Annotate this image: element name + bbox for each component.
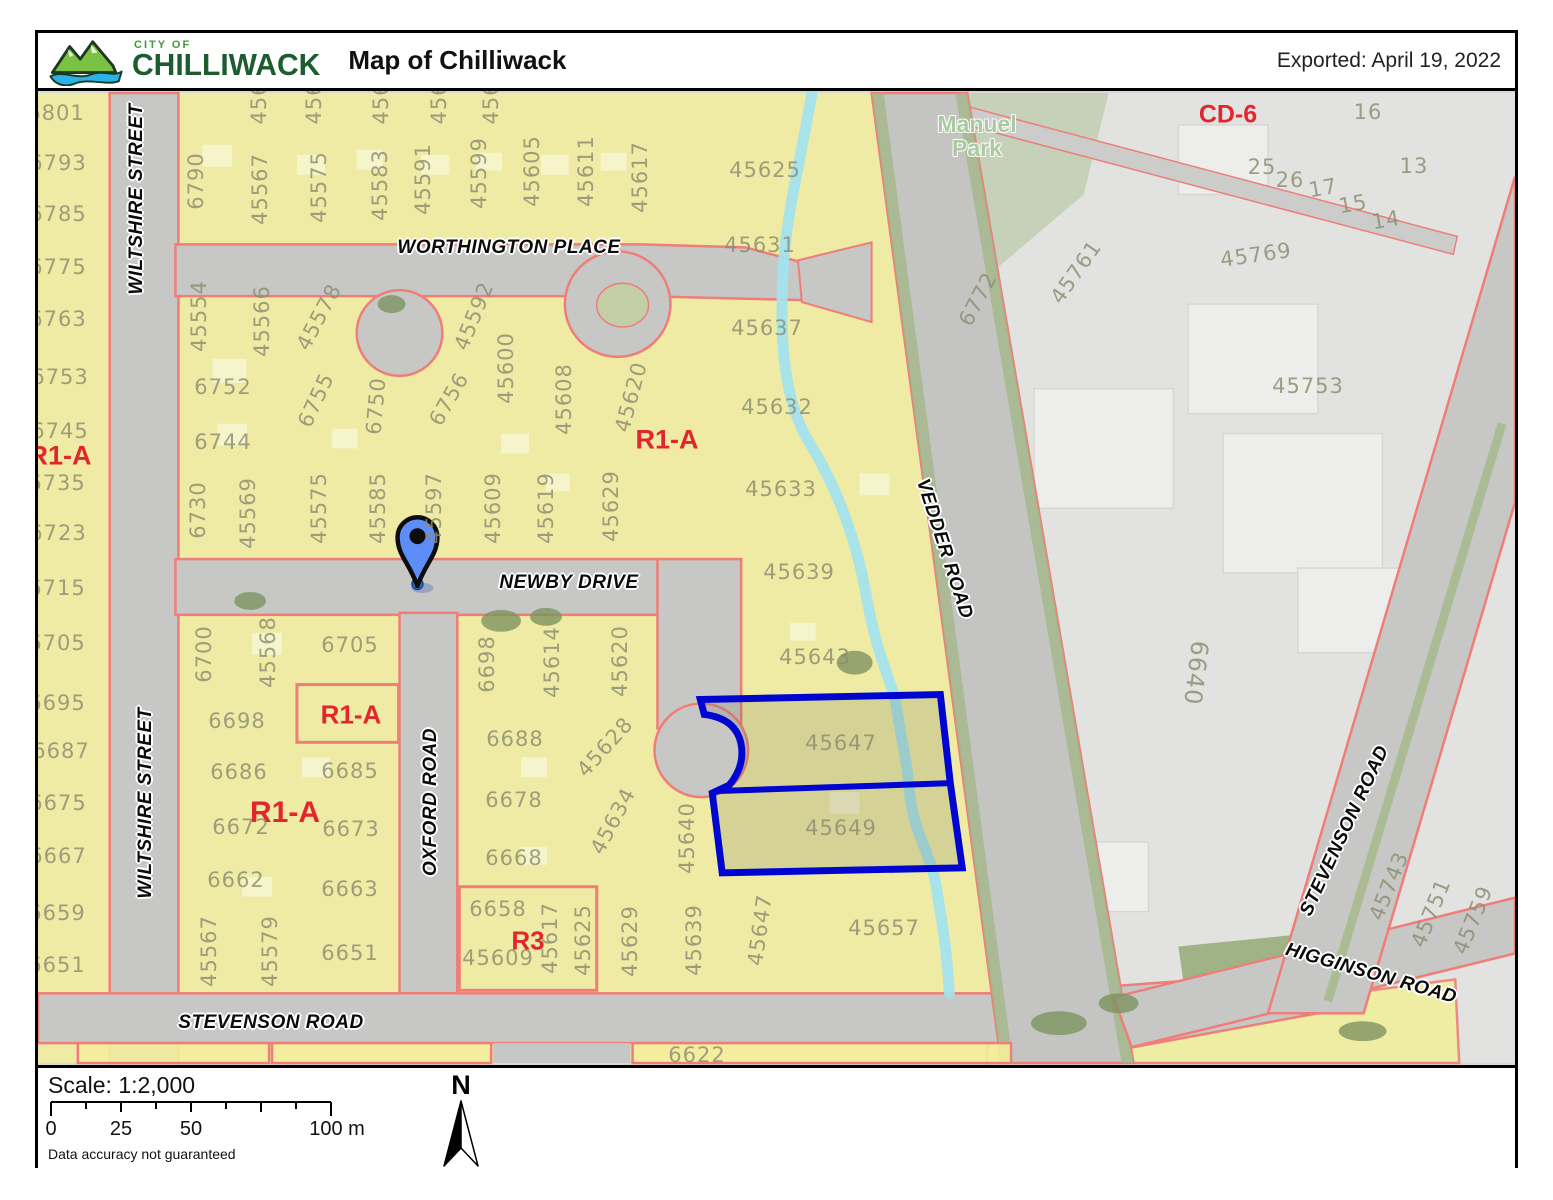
scale-tick-label: 25	[110, 1118, 132, 1141]
exported-date: Exported: April 19, 2022	[1277, 49, 1501, 73]
bottom-driveway	[493, 1043, 630, 1063]
oxford-road	[400, 613, 458, 993]
scale-tick-label: 100 m	[309, 1118, 365, 1141]
highlighted-parcel-outline	[700, 695, 962, 873]
stevenson-road-west	[38, 993, 1019, 1043]
logo-text: CITY OF CHILLIWACK	[132, 40, 320, 81]
map-canvas	[38, 91, 1515, 1065]
logo-chilliwack: CHILLIWACK	[132, 51, 320, 82]
header: CITY OF CHILLIWACK Map of Chilliwack Exp…	[38, 33, 1515, 91]
north-label: N	[451, 1070, 471, 1101]
scale-tick-label: 0	[45, 1118, 56, 1141]
map-export-page: CITY OF CHILLIWACK Map of Chilliwack Exp…	[0, 0, 1553, 1200]
wiltshire-street-road	[110, 93, 179, 1063]
scale-bar	[48, 1100, 368, 1120]
disclaimer-text: Data accuracy not guaranteed	[48, 1146, 236, 1162]
map-viewport: 6801679367856775676367536745673567236715…	[38, 91, 1515, 1065]
document-frame: CITY OF CHILLIWACK Map of Chilliwack Exp…	[35, 30, 1518, 1168]
north-arrow-icon	[441, 1100, 481, 1169]
worthington-loop-island	[597, 283, 649, 327]
scale-tick-label: 50	[180, 1118, 202, 1141]
worthington-place-road	[175, 244, 801, 300]
chilliwack-logo: CITY OF CHILLIWACK	[48, 36, 320, 86]
scale-text: Scale: 1:2,000	[48, 1072, 195, 1099]
mountain-logo-icon	[48, 36, 126, 86]
page-title: Map of Chilliwack	[348, 45, 566, 76]
footer: Scale: 1:2,000 02550100 m Data accuracy …	[38, 1065, 1515, 1168]
